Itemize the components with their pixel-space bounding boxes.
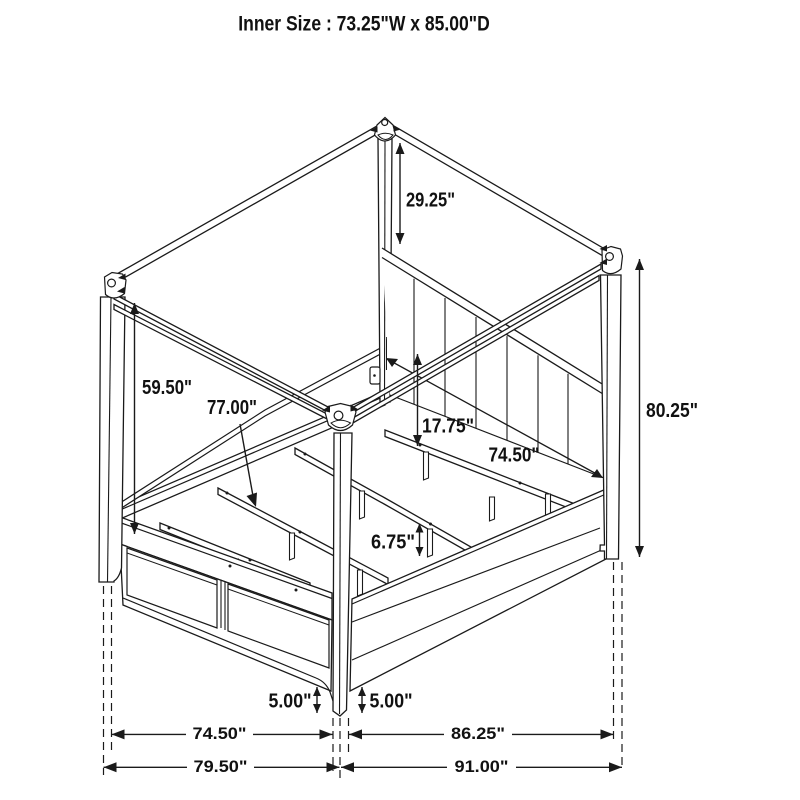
svg-text:91.00": 91.00": [455, 757, 509, 776]
svg-text:80.25": 80.25": [646, 400, 698, 422]
svg-text:5.00": 5.00": [269, 691, 312, 713]
svg-text:79.50": 79.50": [194, 757, 248, 776]
svg-text:6.75": 6.75": [371, 532, 415, 554]
svg-text:74.50": 74.50": [193, 724, 247, 743]
svg-text:29.25": 29.25": [406, 190, 455, 212]
svg-text:77.00": 77.00": [207, 397, 257, 419]
svg-text:74.50": 74.50": [489, 445, 540, 467]
svg-text:17.75": 17.75": [422, 416, 474, 438]
svg-text:Inner Size : 73.25"W x 85.00"D: Inner Size : 73.25"W x 85.00"D: [238, 12, 490, 35]
svg-text:86.25": 86.25": [451, 724, 505, 743]
svg-text:59.50": 59.50": [142, 377, 192, 399]
svg-text:5.00": 5.00": [370, 691, 413, 713]
